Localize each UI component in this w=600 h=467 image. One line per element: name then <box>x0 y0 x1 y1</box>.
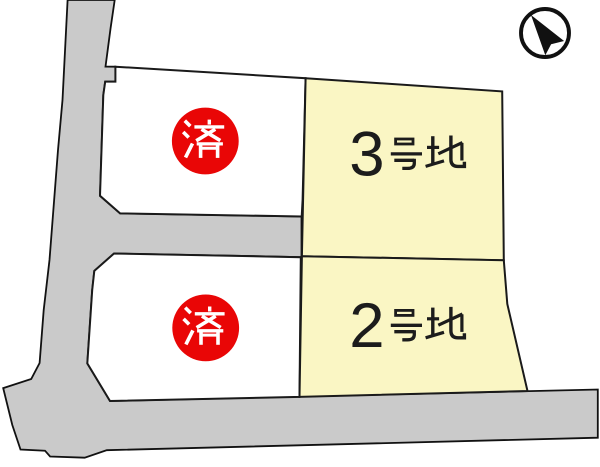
svg-text:3: 3 <box>349 120 384 190</box>
svg-text:2: 2 <box>349 291 384 361</box>
